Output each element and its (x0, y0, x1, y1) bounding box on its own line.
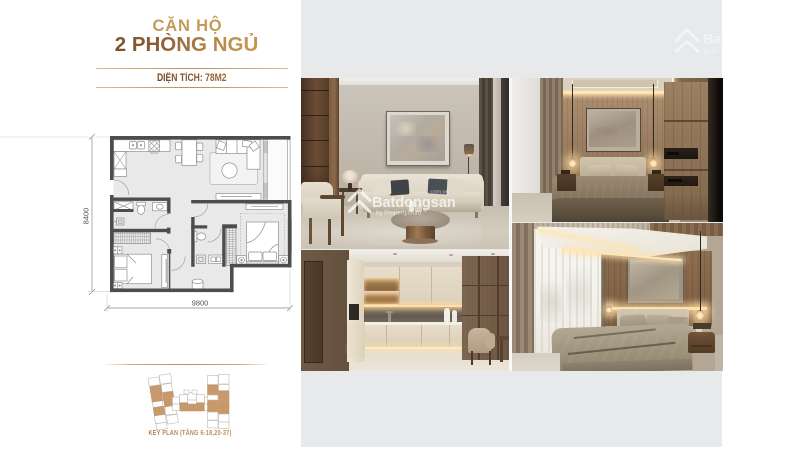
svg-text:Ba: Ba (704, 31, 722, 47)
svg-text:by PropertyGuru: by PropertyGuru (376, 210, 422, 217)
svg-text:8400: 8400 (82, 208, 91, 225)
svg-text:9800: 9800 (192, 299, 209, 308)
svg-text:by Pr: by Pr (704, 50, 718, 56)
svg-text:.com.vn: .com.vn (429, 190, 449, 196)
